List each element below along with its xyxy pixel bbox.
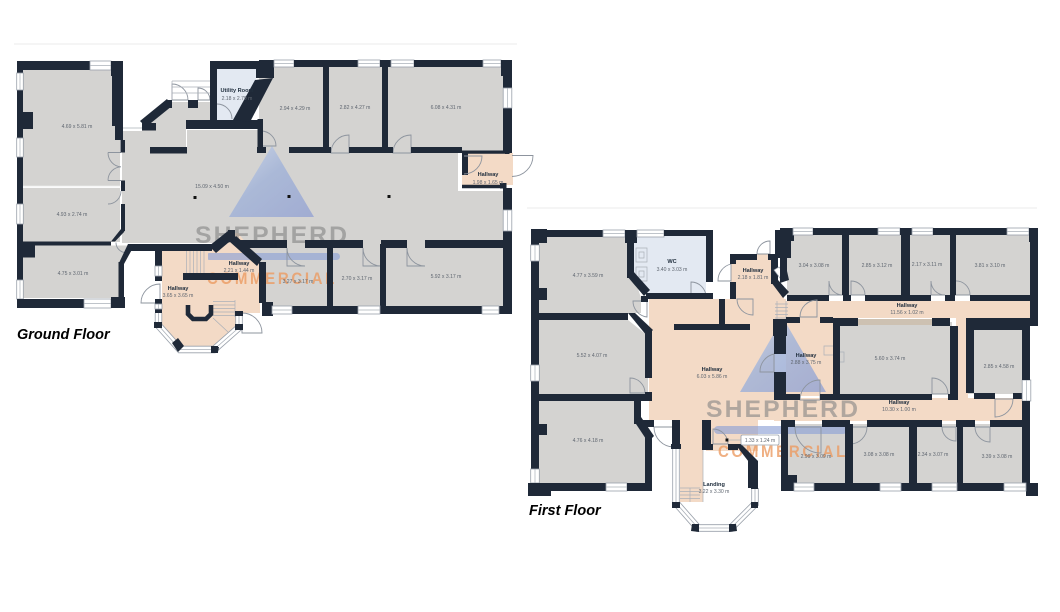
svg-text:2.85 x 4.58 m: 2.85 x 4.58 m <box>984 364 1015 370</box>
svg-text:5.60 x 3.74 m: 5.60 x 3.74 m <box>875 356 906 362</box>
svg-text:3.40 x 3.03 m: 3.40 x 3.03 m <box>657 267 688 273</box>
svg-text:2.88 x 3.75 m: 2.88 x 3.75 m <box>791 360 822 366</box>
svg-text:2.21 x 1.44 m: 2.21 x 1.44 m <box>224 268 255 274</box>
svg-text:2.34 x 3.07 m: 2.34 x 3.07 m <box>918 452 949 458</box>
svg-text:3.65 x 3.65 m: 3.65 x 3.65 m <box>163 293 194 299</box>
svg-text:3.08 x 3.08 m: 3.08 x 3.08 m <box>864 452 895 458</box>
svg-text:3.27 x 3.17 m: 3.27 x 3.17 m <box>283 279 314 285</box>
svg-text:6.08 x 4.31 m: 6.08 x 4.31 m <box>431 105 462 111</box>
svg-text:Hallway: Hallway <box>897 303 919 309</box>
svg-text:First Floor: First Floor <box>529 503 602 519</box>
svg-text:1.98 x 1.65 m: 1.98 x 1.65 m <box>473 180 504 186</box>
svg-text:Ground Floor: Ground Floor <box>17 327 111 343</box>
svg-text:Utility Room: Utility Room <box>221 88 254 94</box>
svg-text:6.03 x 5.86 m: 6.03 x 5.86 m <box>697 374 728 380</box>
svg-text:1.33 x 1.24 m: 1.33 x 1.24 m <box>745 438 775 444</box>
svg-text:Hallway: Hallway <box>702 367 724 373</box>
svg-text:Hallway: Hallway <box>889 400 911 406</box>
svg-text:4.76 x 4.18 m: 4.76 x 4.18 m <box>573 438 604 444</box>
svg-text:4.77 x 3.59 m: 4.77 x 3.59 m <box>573 273 604 279</box>
svg-text:15.09 x 4.50 m: 15.09 x 4.50 m <box>195 184 229 190</box>
svg-text:SHEPHERD: SHEPHERD <box>706 396 860 423</box>
svg-text:3.04 x 3.08 m: 3.04 x 3.08 m <box>799 263 830 269</box>
svg-text:Hallway: Hallway <box>478 172 500 178</box>
svg-text:Hallway: Hallway <box>229 261 251 267</box>
svg-text:4.69 x 5.81 m: 4.69 x 5.81 m <box>62 124 93 130</box>
svg-text:Hallway: Hallway <box>168 286 190 292</box>
svg-text:3.81 x 3.10 m: 3.81 x 3.10 m <box>975 263 1006 269</box>
svg-text:3.22 x 3.30 m: 3.22 x 3.30 m <box>699 489 730 495</box>
svg-text:2.82 x 4.27 m: 2.82 x 4.27 m <box>340 105 371 111</box>
svg-text:Landing: Landing <box>703 482 725 488</box>
svg-text:4.93 x 2.74 m: 4.93 x 2.74 m <box>57 212 88 218</box>
svg-text:2.18 x 2.79 m: 2.18 x 2.79 m <box>222 96 253 102</box>
svg-text:10.30 x 1.00 m: 10.30 x 1.00 m <box>882 407 916 413</box>
svg-text:11.56 x 1.02 m: 11.56 x 1.02 m <box>890 310 923 316</box>
svg-text:Hallway: Hallway <box>743 268 765 274</box>
svg-text:Hallway: Hallway <box>796 353 818 359</box>
svg-text:5.52 x 4.07 m: 5.52 x 4.07 m <box>577 353 608 359</box>
svg-text:2.17 x 3.11 m: 2.17 x 3.11 m <box>912 262 943 268</box>
svg-text:2.94 x 4.29 m: 2.94 x 4.29 m <box>280 106 311 112</box>
svg-text:2.70 x 3.17 m: 2.70 x 3.17 m <box>342 276 373 282</box>
svg-text:2.85 x 3.12 m: 2.85 x 3.12 m <box>862 263 893 269</box>
svg-text:WC: WC <box>667 259 676 265</box>
svg-text:5.92 x 3.17 m: 5.92 x 3.17 m <box>431 274 462 280</box>
svg-text:2.99 x 3.09 m: 2.99 x 3.09 m <box>801 454 832 460</box>
svg-text:4.75 x 3.01 m: 4.75 x 3.01 m <box>58 271 89 277</box>
svg-text:3.39 x 3.08 m: 3.39 x 3.08 m <box>982 454 1013 460</box>
svg-text:2.18 x 1.81 m: 2.18 x 1.81 m <box>738 275 769 281</box>
